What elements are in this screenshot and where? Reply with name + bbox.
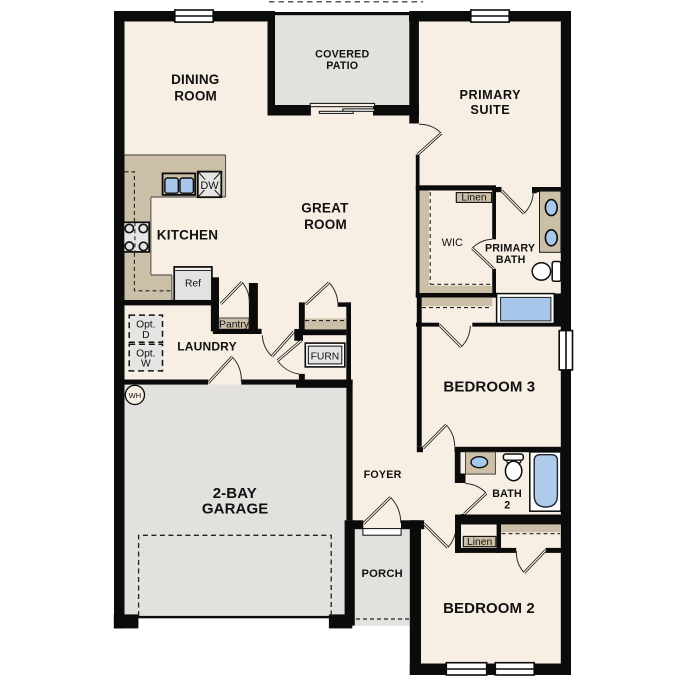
svg-text:FURN: FURN bbox=[311, 351, 340, 362]
svg-text:BEDROOM 2: BEDROOM 2 bbox=[443, 600, 535, 617]
svg-text:KITCHEN: KITCHEN bbox=[157, 227, 218, 242]
svg-text:GARAGE: GARAGE bbox=[202, 501, 268, 518]
svg-text:W: W bbox=[141, 359, 151, 370]
svg-text:BATH: BATH bbox=[496, 254, 526, 266]
svg-text:BEDROOM 3: BEDROOM 3 bbox=[443, 378, 535, 395]
svg-text:ROOM: ROOM bbox=[174, 88, 217, 103]
svg-text:WIC: WIC bbox=[442, 237, 463, 249]
svg-text:WH: WH bbox=[129, 391, 142, 400]
svg-text:ROOM: ROOM bbox=[304, 217, 347, 232]
svg-text:PATIO: PATIO bbox=[326, 60, 358, 72]
svg-text:BATH: BATH bbox=[492, 488, 522, 500]
svg-text:PRIMARY: PRIMARY bbox=[460, 88, 522, 102]
svg-text:GREAT: GREAT bbox=[301, 201, 349, 216]
svg-text:DINING: DINING bbox=[171, 72, 219, 87]
svg-text:COVERED: COVERED bbox=[315, 49, 369, 61]
svg-text:Linen: Linen bbox=[467, 537, 492, 548]
svg-text:D: D bbox=[142, 330, 149, 341]
svg-text:Opt.: Opt. bbox=[136, 319, 155, 330]
svg-text:2-BAY: 2-BAY bbox=[213, 485, 257, 502]
svg-text:Ref: Ref bbox=[185, 279, 201, 290]
svg-text:LAUNDRY: LAUNDRY bbox=[177, 340, 237, 354]
svg-text:2: 2 bbox=[504, 500, 510, 512]
svg-text:PORCH: PORCH bbox=[361, 568, 402, 580]
svg-text:Linen: Linen bbox=[461, 193, 486, 204]
svg-text:FOYER: FOYER bbox=[364, 469, 402, 481]
svg-text:PRIMARY: PRIMARY bbox=[485, 243, 535, 255]
svg-text:SUITE: SUITE bbox=[470, 103, 510, 117]
svg-text:DW: DW bbox=[200, 180, 219, 192]
